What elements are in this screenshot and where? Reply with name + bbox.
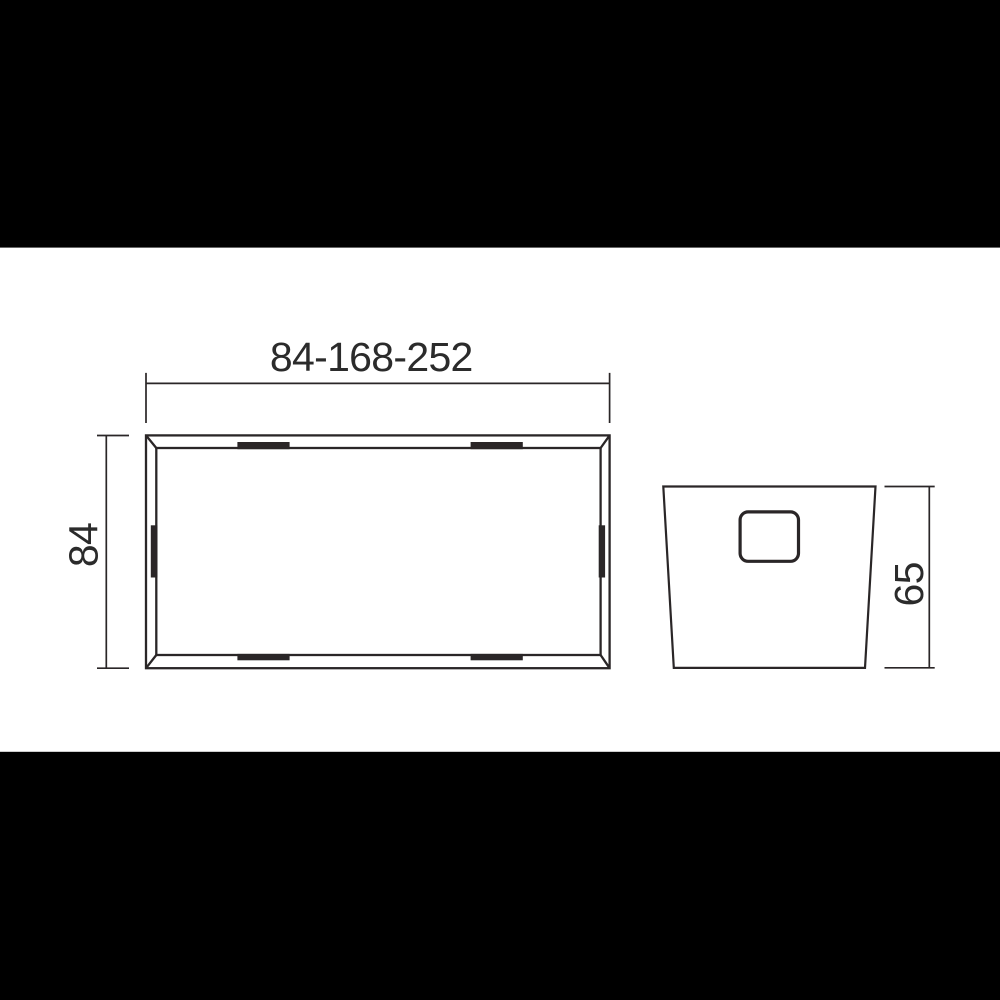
svg-text:65: 65 [886,562,932,606]
svg-text:84: 84 [61,523,107,567]
svg-text:84-168-252: 84-168-252 [270,334,473,380]
